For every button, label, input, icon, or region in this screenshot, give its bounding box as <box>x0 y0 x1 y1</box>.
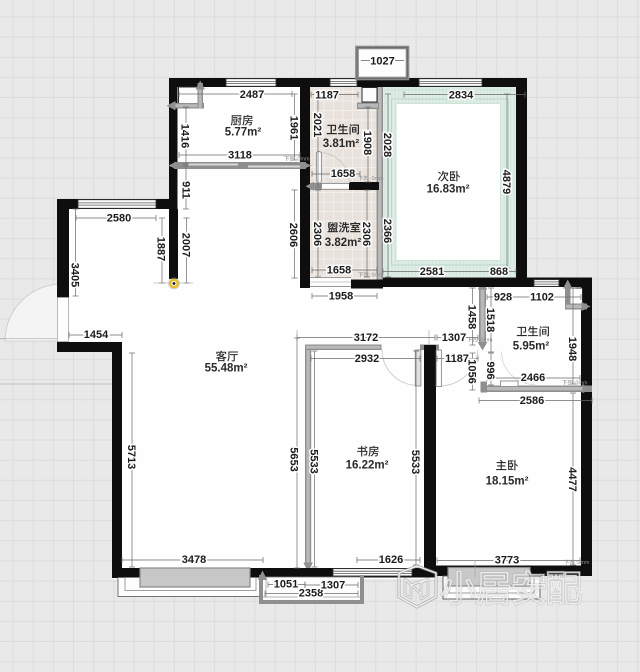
svg-text:1958: 1958 <box>329 290 353 302</box>
svg-text:1658: 1658 <box>327 264 351 276</box>
svg-text:5533: 5533 <box>409 450 421 474</box>
svg-text:3.82m²: 3.82m² <box>325 237 362 249</box>
svg-text:1518: 1518 <box>484 308 496 332</box>
svg-text:2932: 2932 <box>355 353 379 365</box>
svg-text:1187: 1187 <box>445 353 469 365</box>
svg-text:2581: 2581 <box>420 266 444 278</box>
svg-text:1626: 1626 <box>379 554 403 566</box>
svg-text:1961: 1961 <box>288 116 300 140</box>
svg-text:2021: 2021 <box>311 113 323 137</box>
svg-text:2834: 2834 <box>449 89 474 101</box>
svg-text:4879: 4879 <box>500 170 512 194</box>
svg-text::0mm: :0mm <box>574 381 588 387</box>
svg-text:3118: 3118 <box>228 149 252 161</box>
svg-text:928: 928 <box>494 291 512 303</box>
svg-text:1658: 1658 <box>331 168 355 180</box>
svg-text::0mm: :0mm <box>576 560 590 566</box>
svg-text:1102: 1102 <box>530 291 554 303</box>
svg-text::0mm: :0mm <box>479 338 493 344</box>
svg-text:5.77m²: 5.77m² <box>225 127 262 139</box>
svg-text:1056: 1056 <box>466 359 478 383</box>
svg-text:16.22m²: 16.22m² <box>346 460 389 472</box>
svg-text:55.48m²: 55.48m² <box>205 363 248 375</box>
svg-text:2466: 2466 <box>521 372 545 384</box>
svg-text:868: 868 <box>490 266 508 278</box>
svg-text:2358: 2358 <box>299 587 323 599</box>
svg-text:2580: 2580 <box>107 212 131 224</box>
svg-text:1416: 1416 <box>179 124 191 148</box>
svg-text:1887: 1887 <box>155 237 167 261</box>
svg-text:3478: 3478 <box>182 554 206 566</box>
svg-text:5653: 5653 <box>288 447 300 471</box>
svg-text:2606: 2606 <box>287 223 299 247</box>
svg-text:4477: 4477 <box>566 467 578 491</box>
svg-text:18.15m²: 18.15m² <box>486 476 529 488</box>
svg-text:911: 911 <box>180 181 192 199</box>
svg-text:3405: 3405 <box>69 263 81 287</box>
svg-text:996: 996 <box>484 361 496 379</box>
svg-text:1307: 1307 <box>321 579 345 591</box>
svg-text:2007: 2007 <box>180 233 192 257</box>
svg-text:3.81m²: 3.81m² <box>323 138 360 150</box>
svg-text:1307: 1307 <box>442 332 466 344</box>
svg-text:16.83m²: 16.83m² <box>427 184 470 196</box>
svg-text:1027: 1027 <box>370 56 394 68</box>
svg-text:2028: 2028 <box>381 133 393 157</box>
svg-text:1908: 1908 <box>361 131 373 155</box>
svg-text:3773: 3773 <box>495 554 519 566</box>
svg-text:2306: 2306 <box>360 222 372 246</box>
svg-text:5.95m²: 5.95m² <box>513 341 550 353</box>
svg-text:1051: 1051 <box>274 578 298 590</box>
svg-text:5713: 5713 <box>125 445 137 469</box>
svg-text::0mm: :0mm <box>370 176 384 182</box>
svg-text:1187: 1187 <box>315 89 339 101</box>
svg-text::0mm: :0mm <box>296 157 310 163</box>
svg-text:3172: 3172 <box>354 332 378 344</box>
svg-text:1458: 1458 <box>466 305 478 329</box>
svg-text:2366: 2366 <box>381 219 393 243</box>
svg-text:1454: 1454 <box>84 329 109 341</box>
svg-text:5533: 5533 <box>308 449 320 473</box>
svg-text:2487: 2487 <box>240 89 264 101</box>
svg-text::0mm: :0mm <box>370 273 384 279</box>
svg-text:1948: 1948 <box>566 337 578 361</box>
svg-text:2586: 2586 <box>520 395 544 407</box>
svg-text:2306: 2306 <box>311 222 323 246</box>
